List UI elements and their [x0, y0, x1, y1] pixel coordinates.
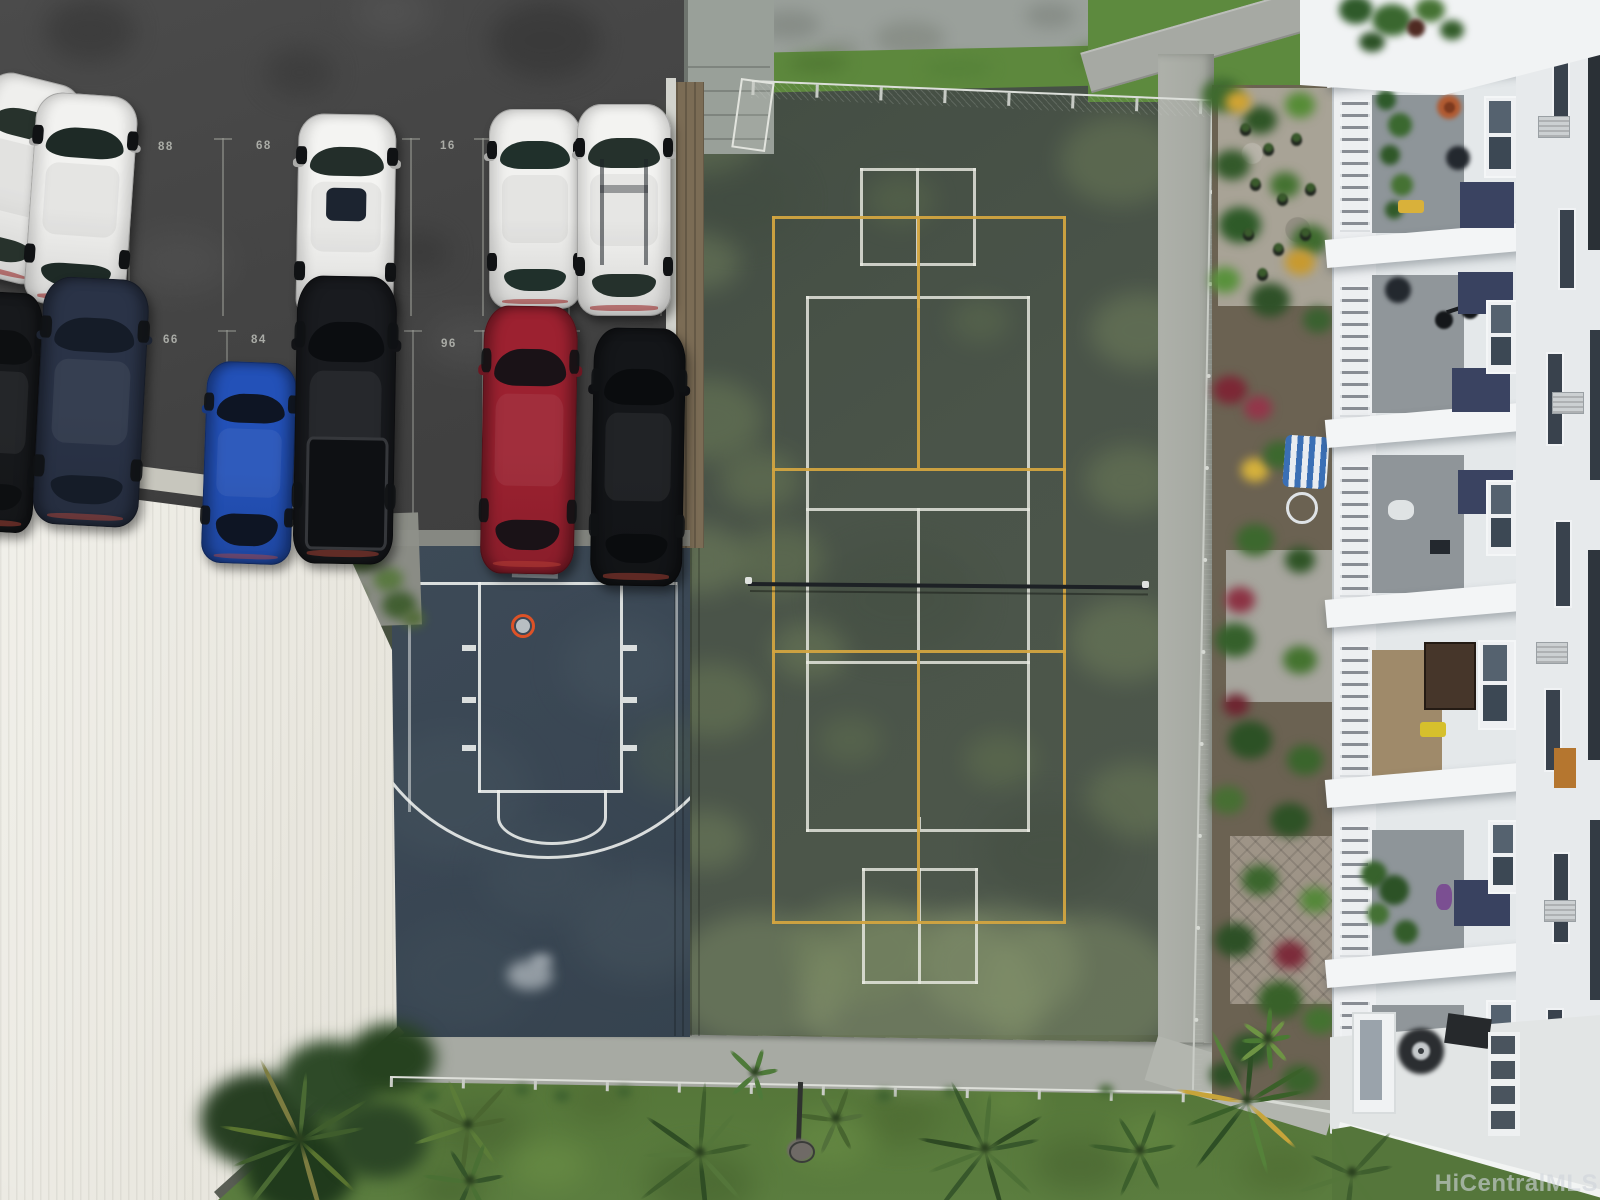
garden-plant [1285, 92, 1315, 118]
court-line [686, 66, 770, 68]
garden-plant [1236, 524, 1274, 556]
asphalt-wear [130, 232, 230, 292]
palm-crown [1242, 1095, 1252, 1105]
grill-center [1418, 1048, 1424, 1054]
court-line [222, 138, 224, 316]
court-line [917, 650, 920, 924]
car-white-sedan-2 [489, 109, 581, 309]
windshield [216, 393, 285, 424]
asphalt-stain [390, 231, 450, 273]
garden-plant [1274, 941, 1306, 968]
fence-post [1182, 1093, 1185, 1102]
balcony-plant [1379, 875, 1409, 905]
court-line [462, 645, 476, 651]
window-slot [1554, 520, 1572, 608]
wheel [384, 484, 395, 510]
roof-panel [0, 370, 29, 454]
rear-window [0, 483, 22, 512]
sunroof [326, 188, 366, 222]
windshield [309, 146, 384, 176]
wheel [294, 261, 305, 280]
court-line [772, 216, 775, 924]
wheel [200, 506, 211, 525]
window-glass [1491, 305, 1511, 333]
window-glass [1491, 485, 1511, 514]
fence-post [1201, 650, 1205, 654]
windshield [0, 329, 33, 366]
wheel [387, 148, 398, 167]
window-glass [1491, 518, 1511, 547]
fence-post [1207, 374, 1211, 378]
court-divider-wall [674, 548, 704, 1036]
window-glass [1483, 685, 1507, 721]
balcony-plant [1388, 113, 1412, 137]
garden-plant [1283, 646, 1317, 675]
window-glass [1491, 1036, 1515, 1054]
tail-lights [493, 560, 561, 568]
net-post [1142, 581, 1149, 588]
palm-crown [1263, 1033, 1273, 1043]
patio-chairs [1282, 435, 1330, 490]
potted-plant [1251, 178, 1260, 187]
shrub [554, 1090, 570, 1101]
fence-post [1007, 93, 1010, 106]
wheel [204, 393, 215, 412]
grass-mottle [788, 54, 848, 73]
wheel [126, 131, 139, 151]
potted-plant [1264, 143, 1273, 152]
windshield [500, 141, 570, 169]
brick-pavers [1230, 836, 1332, 1004]
court-line [1063, 216, 1066, 924]
garden-plant [1211, 786, 1245, 815]
court-line [917, 216, 920, 468]
balcony-item [1430, 540, 1450, 554]
window [1484, 96, 1520, 178]
potted-plant [1301, 228, 1310, 237]
hoop-net [516, 619, 530, 633]
window-glass [1489, 101, 1511, 133]
wheel [487, 141, 497, 159]
garden-plant [1285, 249, 1315, 275]
moss-patch [790, 898, 930, 1003]
court-line [404, 330, 422, 332]
palm-crown [695, 1147, 705, 1157]
garden-plant [1215, 623, 1255, 657]
car-navy-sedan [32, 275, 151, 528]
roof-rail [600, 159, 605, 265]
three-point-arc [392, 545, 690, 859]
car-black-pickup [292, 275, 397, 565]
wheel [569, 350, 580, 374]
court-line [806, 296, 809, 832]
rooftop-bush [1339, 0, 1373, 24]
balcony-railing [1340, 465, 1370, 597]
rear-window [605, 534, 668, 563]
fence-post [1194, 1018, 1198, 1022]
aerial-photo: 886816668496 HiCentralMLS [0, 0, 1600, 1200]
tail-lights [0, 518, 22, 527]
fence-post [1135, 98, 1138, 111]
stall-number-88: 88 [158, 141, 174, 153]
fence-post [606, 1082, 609, 1091]
potted-plant [1278, 193, 1287, 202]
garden-plant [1242, 865, 1278, 896]
moss-patch [818, 716, 882, 764]
windshield [53, 316, 135, 355]
purple-item [1436, 884, 1452, 910]
fence-post [1071, 95, 1074, 108]
garden-plant [1219, 207, 1261, 243]
roof-panel [42, 161, 120, 238]
window-slot [1558, 208, 1576, 290]
roof-edge-dark [1588, 550, 1600, 760]
court-line [862, 868, 865, 984]
garden-plant [1213, 376, 1247, 405]
car-red-sedan [480, 305, 579, 575]
window-glass [1491, 1061, 1515, 1079]
shrub [515, 1085, 529, 1095]
window [1486, 480, 1520, 556]
garden-plant [1287, 745, 1323, 776]
court-line [772, 468, 1066, 471]
fence-post [534, 1081, 537, 1090]
garden-plant [1225, 587, 1255, 613]
car-white-wagon-roofrack [577, 104, 671, 316]
palm-crown [463, 1119, 473, 1129]
wheel [130, 459, 143, 482]
patio-door-glass [1360, 1020, 1382, 1100]
roof-rail [644, 159, 649, 265]
wheel [566, 500, 577, 524]
ceiling-fan-icon [1446, 146, 1470, 170]
window-slot [1552, 852, 1570, 944]
wheel [575, 257, 585, 276]
shrub [876, 1090, 892, 1101]
potted-plant [1292, 133, 1301, 142]
palm-crown [465, 1175, 475, 1185]
stall-number-16: 16 [440, 140, 456, 152]
roof-panel [604, 413, 672, 502]
wheel [674, 514, 685, 537]
garden-plant [1270, 803, 1310, 837]
window-glass [1489, 137, 1511, 169]
potted-plant [1274, 243, 1283, 252]
wheel [487, 253, 497, 271]
tail-lights [47, 511, 124, 521]
roof-panel [51, 358, 132, 446]
wheel [294, 321, 305, 347]
windshield [494, 348, 566, 387]
wheel [32, 454, 45, 477]
tail-lights [213, 553, 278, 560]
basketball-court [392, 545, 690, 1037]
balcony-railing [1340, 825, 1370, 957]
wheel [663, 138, 673, 157]
fence-post [1198, 834, 1202, 838]
roof-panel [502, 175, 568, 243]
wheel [591, 368, 602, 391]
windshield [45, 125, 124, 160]
wheel [481, 348, 492, 372]
rear-window [50, 474, 123, 505]
garden-plant [1210, 267, 1240, 293]
balcony-plant [1391, 174, 1413, 196]
wheel [32, 124, 45, 144]
court-line [975, 868, 978, 984]
balcony-railing [1340, 100, 1370, 232]
terracotta-pot [1444, 102, 1455, 113]
ac-unit [1552, 392, 1584, 414]
court-line [214, 138, 232, 140]
garden-plant [1223, 694, 1249, 716]
court-line [218, 330, 236, 332]
rear-window [592, 274, 656, 297]
ac-unit [1536, 642, 1568, 664]
rooftop-bush [1440, 20, 1464, 39]
moss-patch [720, 450, 800, 510]
shrub [617, 1087, 631, 1097]
navy-accent-panel [1460, 182, 1514, 228]
rear-window [216, 512, 278, 546]
potted-plant [1244, 228, 1253, 237]
asphalt-stain [490, 2, 600, 79]
potted-plant [1306, 183, 1315, 192]
fence-post [462, 1079, 465, 1088]
wheel [387, 323, 398, 349]
fence-post [815, 85, 818, 98]
window [1486, 300, 1520, 374]
moss-patch [950, 298, 1010, 343]
fence-post [1199, 101, 1202, 114]
court-line [402, 138, 420, 140]
asphalt-stain [45, 0, 135, 62]
palm-crown [980, 1143, 990, 1153]
balcony-plant [1394, 920, 1418, 944]
balcony-plant [1380, 145, 1400, 165]
stall-number-66: 66 [163, 334, 179, 346]
potted-plant [1258, 268, 1267, 277]
court-line [482, 138, 484, 316]
tail-lights [307, 549, 379, 557]
window [1478, 640, 1516, 730]
paint-smudge [531, 953, 553, 967]
balcony-floor [1372, 455, 1464, 593]
fence-post [390, 1078, 393, 1087]
court-line [623, 645, 637, 651]
patio-table [1388, 500, 1414, 520]
storage-cabinet [1424, 642, 1476, 710]
balcony-railing [1340, 645, 1370, 777]
dark-mat [1444, 1013, 1492, 1049]
garden-plant [1285, 547, 1315, 573]
garden-plant [1225, 91, 1251, 113]
grass-mottle [923, 59, 993, 78]
wire-table [1286, 492, 1318, 524]
yellow-crate [1420, 722, 1446, 737]
wheel [291, 482, 302, 508]
shrub [1099, 1085, 1113, 1095]
rear-window [495, 520, 559, 551]
tail-lights [502, 299, 568, 304]
window-glass [1491, 1086, 1515, 1104]
garden-plant [1214, 150, 1250, 181]
window-glass [1491, 337, 1511, 365]
window-glass [1493, 825, 1513, 853]
orange-vent [1554, 748, 1576, 788]
wheel [385, 263, 396, 282]
tail-lights [603, 573, 669, 581]
fence-post [1038, 1090, 1041, 1099]
bicycle-wheel [1435, 311, 1453, 329]
windshield [308, 321, 385, 363]
wheel [24, 243, 37, 263]
roof-edge-dark [1590, 330, 1600, 480]
car-blue-hatchback [201, 360, 298, 565]
roof-panel [494, 394, 563, 486]
court-line [412, 330, 414, 524]
window-glass [1483, 645, 1507, 681]
palm-crown [1135, 1145, 1145, 1155]
balcony-plant [1376, 90, 1396, 110]
roof-edge-dark [1590, 820, 1600, 1000]
roof-crossbar [600, 185, 649, 193]
fence-post [1200, 742, 1204, 746]
court-line [1027, 296, 1030, 832]
court-line [410, 138, 412, 316]
lawn-mottle [510, 1141, 590, 1189]
court-shadow [980, 801, 1120, 899]
ac-unit [1544, 900, 1576, 922]
palm-crown [1347, 1167, 1357, 1177]
car-black-sedan [590, 327, 686, 587]
fence-post [750, 1085, 753, 1094]
wheel [677, 370, 688, 393]
truck-bed [305, 437, 389, 551]
fence-post [966, 1089, 969, 1098]
garden-plant [1303, 307, 1333, 333]
wheel [296, 146, 307, 165]
ac-unit [1538, 116, 1570, 138]
fence-post [678, 1084, 681, 1093]
window-glass [1491, 1111, 1515, 1129]
stall-number-84: 84 [251, 334, 267, 346]
roof-panel [215, 428, 282, 499]
palm-crown [831, 1113, 841, 1123]
fence-post [1196, 926, 1200, 930]
palm-crown [750, 1067, 760, 1077]
watermark: HiCentralMLS [1435, 1170, 1598, 1198]
dark-pot [1407, 19, 1425, 37]
lamp-rim [789, 1141, 815, 1163]
wheel [39, 315, 52, 338]
path-stain [1025, 3, 1075, 28]
window-glass [1493, 857, 1513, 885]
wheel [575, 138, 585, 157]
rear-window [504, 269, 567, 291]
wheel [138, 320, 151, 343]
stall-number-96: 96 [441, 338, 457, 350]
palm-crown [295, 1133, 305, 1143]
wheel [663, 257, 673, 276]
balcony-plant [1367, 903, 1389, 925]
garden-plant [1244, 396, 1272, 420]
tail-lights [590, 305, 658, 310]
rooftop-bush [1372, 4, 1412, 36]
fence-post [894, 1088, 897, 1097]
ceiling-fan-icon [1385, 277, 1411, 303]
wheel [479, 498, 490, 522]
garden-plant [1228, 721, 1272, 758]
net-post [745, 577, 752, 584]
garden-plant [1300, 887, 1330, 913]
yellow-bench [1398, 200, 1424, 213]
navy-accent-panel [1452, 368, 1510, 412]
wheel [589, 513, 600, 536]
weeds [373, 567, 404, 592]
stall-number-68: 68 [256, 140, 272, 152]
moss-patch [964, 733, 1036, 787]
potted-plant [1241, 123, 1250, 132]
fence-post [943, 90, 946, 103]
window [1488, 1032, 1520, 1136]
balcony-railing [1340, 285, 1370, 417]
garden-plant [1250, 283, 1290, 317]
garden-plant [1258, 981, 1302, 1018]
asphalt-stain [265, 48, 335, 97]
court-shadow [820, 544, 980, 656]
fence-post [1203, 558, 1207, 562]
wheel [118, 249, 131, 269]
fence-post [879, 87, 882, 100]
windshield [604, 369, 675, 406]
garden-plant [1215, 923, 1255, 957]
fence-post [1205, 466, 1209, 470]
